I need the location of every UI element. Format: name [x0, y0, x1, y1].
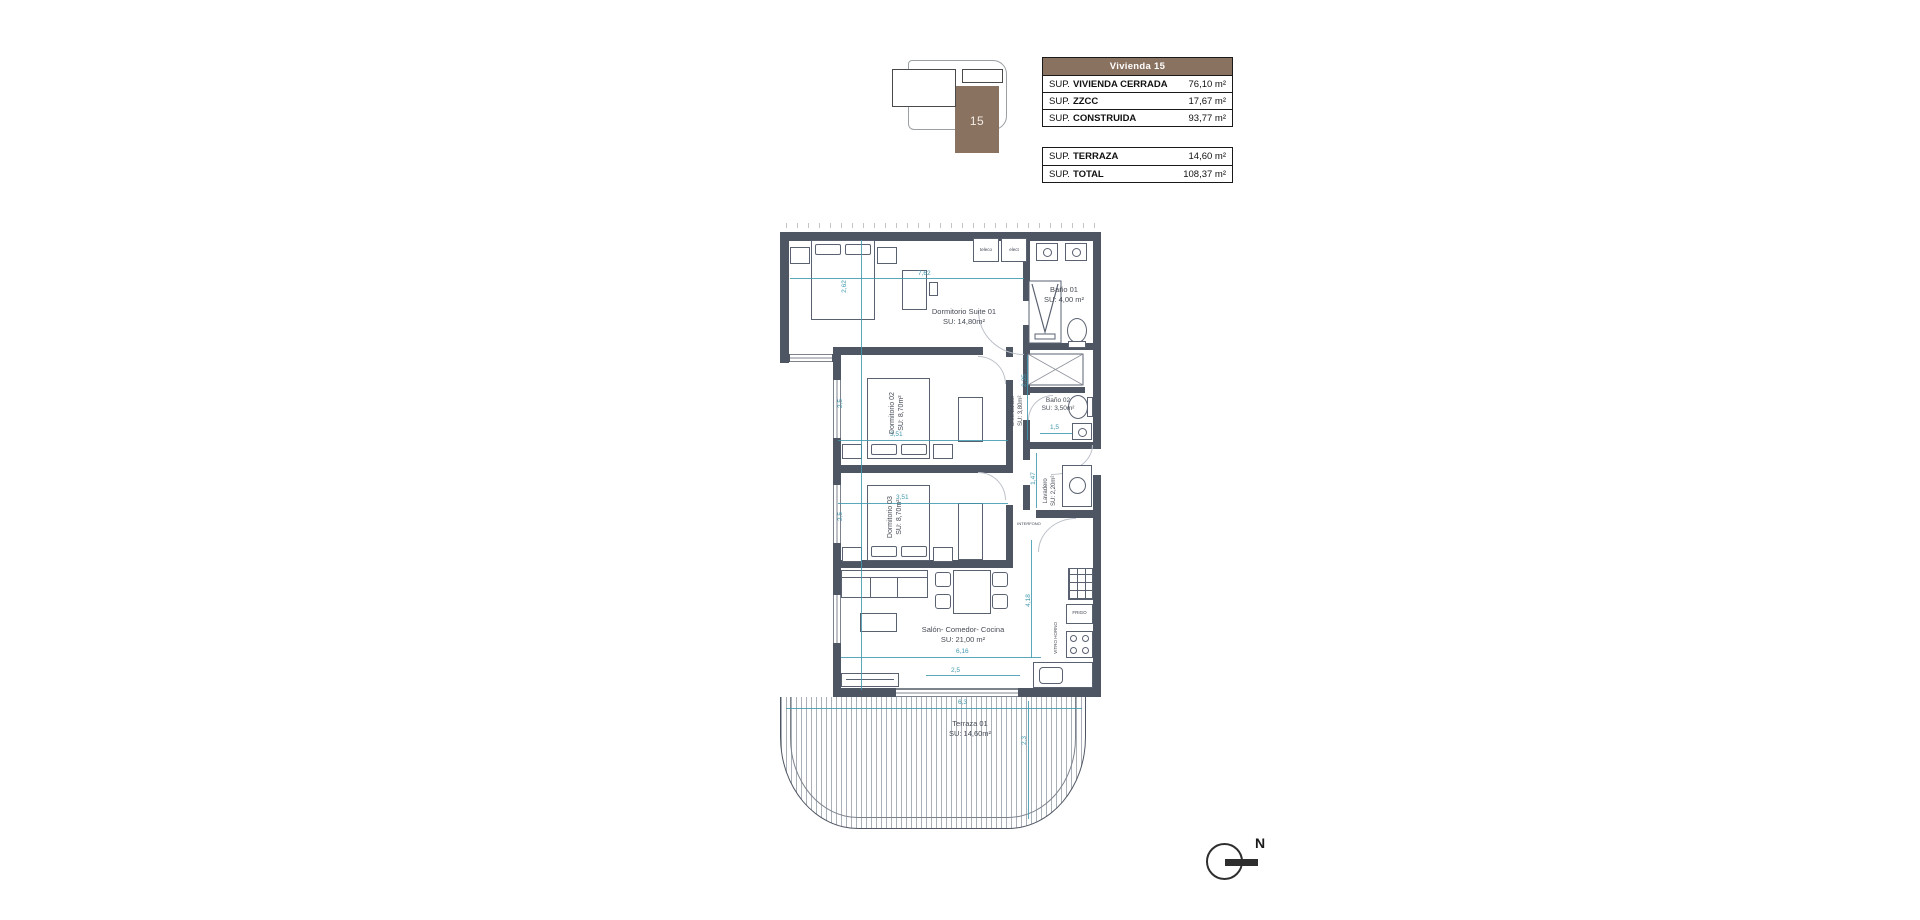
wall-hall-low	[1006, 505, 1013, 568]
room-area: SU: 8,70m²	[897, 378, 906, 448]
row-label: SUP.TOTAL	[1049, 169, 1104, 180]
wall-suite-dorm2	[833, 347, 983, 355]
dim-label: 7,62	[918, 270, 931, 277]
key-location-plan: 15	[890, 50, 1022, 162]
highlighted-unit: 15	[955, 86, 999, 153]
neighbor-unit-b	[962, 69, 1003, 83]
room-label-dorm2: Dormitorio 02 SU: 8,70m²	[888, 378, 906, 448]
window-salon	[833, 595, 841, 643]
row-value: 14,60 m²	[1189, 151, 1227, 162]
kitchen-shelves	[1068, 568, 1093, 600]
dim-line	[841, 657, 1041, 658]
row-prefix: SUP.	[1049, 113, 1070, 124]
room-area: SU: 21,00 m²	[903, 635, 1023, 645]
row-value: 76,10 m²	[1189, 79, 1227, 90]
nightstand	[842, 547, 862, 562]
dining-chair	[935, 594, 951, 609]
sliding-door-terrace	[896, 688, 1018, 697]
washing-machine	[1062, 465, 1092, 507]
room-name: Terraza 01	[910, 719, 1030, 729]
basin-icon	[1043, 248, 1052, 257]
room-name: Lavadero	[1043, 462, 1051, 520]
washer-door-icon	[1069, 477, 1086, 494]
cooktop-label-text: VITRO HORNO	[1053, 618, 1059, 658]
unit-number: 15	[970, 114, 984, 128]
window-dorm2	[833, 380, 841, 438]
sink-bano2	[1072, 423, 1092, 440]
toilet-bano1	[1067, 318, 1087, 343]
table-row: SUP.VIVIENDA CERRADA 76,10 m²	[1043, 75, 1232, 92]
wall-bano1-bottom	[1023, 343, 1101, 350]
room-label-salon: Salón- Comedor- Cocina SU: 21,00 m²	[903, 625, 1023, 645]
dining-chair	[935, 572, 951, 587]
burner-icon	[1070, 647, 1077, 654]
row-label: SUP.ZZCC	[1049, 96, 1098, 107]
wall-lavadero-left-b	[1023, 485, 1030, 510]
table-row: SUP.CONSTRUIDA 93,77 m²	[1043, 109, 1232, 126]
desk-dorm2	[958, 397, 983, 442]
dim-line	[838, 440, 1008, 441]
dim-label: 4,18	[1025, 594, 1032, 607]
row-label: SUP.CONSTRUIDA	[1049, 113, 1136, 124]
closet-teleco-label: teleco	[973, 248, 999, 253]
room-area: SU: 14,60m²	[910, 729, 1030, 739]
door-arc-dorm2	[978, 356, 1006, 384]
wall-dorm2-dorm3	[833, 465, 1013, 473]
row-label: SUP.VIVIENDA CERRADA	[1049, 79, 1168, 90]
wall-lavadero-left-a	[1023, 449, 1030, 460]
room-name: Salón- Comedor- Cocina	[903, 625, 1023, 635]
door-arc-dorm3	[978, 472, 1006, 500]
dim-line	[786, 708, 1082, 709]
room-label-distribuidor: Distribuidor SU: 3,80m²	[1010, 379, 1026, 443]
room-area: SU: 3,50m²	[1026, 405, 1090, 413]
room-label-suite: Dormitorio Suite 01 SU: 14,80m²	[918, 307, 1010, 327]
room-name: Dormitorio 03	[886, 482, 895, 552]
sideboard-line	[846, 679, 894, 680]
dim-label: 2,5	[837, 512, 844, 521]
terrace-inner-edge	[790, 697, 1076, 818]
room-area: SU: 3,80m²	[1018, 379, 1026, 443]
dim-line	[1040, 433, 1072, 434]
pillow	[815, 244, 841, 255]
dining-chair	[992, 594, 1008, 609]
interfono-label: INTERFONO	[1014, 522, 1044, 526]
closet-elect-label: elect	[1001, 248, 1027, 253]
table-header: Vivienda 15	[1043, 58, 1232, 75]
sideboard	[841, 673, 899, 687]
dim-line	[926, 675, 1020, 676]
burner-icon	[1082, 647, 1089, 654]
shower-bano2	[1027, 353, 1084, 386]
row-prefix: SUP.	[1049, 79, 1070, 90]
room-name: Baño 01	[1025, 285, 1103, 295]
surface-table-vivienda: Vivienda 15 SUP.VIVIENDA CERRADA 76,10 m…	[1042, 57, 1233, 127]
nightstand	[877, 247, 897, 264]
toilet-tank	[1068, 341, 1086, 348]
terrace	[780, 697, 1086, 829]
row-name: VIVIENDA CERRADA	[1073, 79, 1168, 90]
row-name: TERRAZA	[1073, 151, 1118, 162]
table-row: SUP.ZZCC 17,67 m²	[1043, 92, 1232, 109]
burner-icon	[1082, 635, 1089, 642]
room-name: Dormitorio 02	[888, 378, 897, 448]
room-label-lavadero: Lavadero SU: 2,20m²	[1043, 462, 1059, 520]
room-label-terraza: Terraza 01 SU: 14,60m²	[910, 719, 1030, 739]
row-prefix: SUP.	[1049, 96, 1070, 107]
desk-dorm3	[958, 503, 983, 560]
sofa	[841, 570, 928, 598]
dim-label: 2,5	[837, 399, 844, 408]
room-name: Distribuidor	[1010, 379, 1018, 443]
surface-table-totals: SUP.TERRAZA 14,60 m² SUP.TOTAL 108,37 m²	[1042, 147, 1233, 183]
dim-label: 6,16	[956, 648, 969, 655]
neighbor-unit-a	[892, 69, 956, 107]
pillow	[901, 546, 927, 557]
dim-label: 2,62	[841, 280, 848, 293]
chair-suite	[929, 282, 938, 296]
cooktop-label: VITRO HORNO	[1053, 618, 1059, 658]
dimension-tick-strip	[786, 223, 1096, 228]
room-area: SU: 14,80m²	[918, 317, 1010, 327]
room-name: Baño 02	[1026, 397, 1090, 405]
wall-right-lower	[1093, 475, 1101, 697]
dining-table	[953, 570, 991, 614]
fridge-label: FRIGO	[1066, 611, 1093, 616]
row-name: CONSTRUIDA	[1073, 113, 1136, 124]
dining-chair	[992, 572, 1008, 587]
pillow	[845, 244, 871, 255]
table-row: SUP.TERRAZA 14,60 m²	[1043, 148, 1232, 165]
nightstand	[842, 444, 862, 459]
dim-label: 1,47	[1030, 472, 1037, 485]
kitchen-sink	[1039, 667, 1063, 684]
row-value: 17,67 m²	[1189, 96, 1227, 107]
dim-line	[861, 240, 862, 690]
nightstand	[933, 547, 953, 562]
room-label-dorm3: Dormitorio 03 SU: 8,70m²	[886, 482, 904, 552]
table-row: SUP.TOTAL 108,37 m²	[1043, 165, 1232, 182]
dim-label: 2,5	[951, 667, 960, 674]
row-name: TOTAL	[1073, 169, 1104, 180]
north-compass: N	[1200, 831, 1274, 897]
dim-line	[790, 278, 1024, 279]
nightstand	[790, 247, 810, 264]
nightstand	[933, 444, 953, 459]
floor-plan: teleco elect FRIGO VITRO HORNO	[778, 185, 1123, 840]
sink-bano1	[1065, 243, 1087, 261]
row-label: SUP.TERRAZA	[1049, 151, 1118, 162]
compass-north-label: N	[1255, 835, 1265, 851]
row-value: 108,37 m²	[1183, 169, 1226, 180]
wall-suite-left	[780, 232, 789, 363]
sink-bano1	[1036, 243, 1058, 261]
dim-label: 1,5	[1050, 424, 1059, 431]
dim-label: 6,3	[958, 699, 967, 706]
room-area: SU: 2,20m²	[1051, 462, 1059, 520]
wall-right-upper	[1093, 232, 1101, 449]
room-label-bano2: Baño 02 SU: 3,50m²	[1026, 397, 1090, 414]
window-suite	[790, 354, 832, 362]
basin-icon	[1072, 248, 1081, 257]
dim-line	[838, 503, 1008, 504]
row-value: 93,77 m²	[1189, 113, 1227, 124]
basin-icon	[1078, 428, 1087, 437]
cooktop	[1066, 631, 1093, 658]
wall-shower2-bottom	[1023, 387, 1085, 393]
coffee-table	[860, 613, 897, 632]
row-name: ZZCC	[1073, 96, 1098, 107]
room-label-bano1: Baño 01 SU: 4,00 m²	[1025, 285, 1103, 305]
room-area: SU: 8,70m²	[895, 482, 904, 552]
compass-needle-icon	[1225, 859, 1258, 866]
room-area: SU: 4,00 m²	[1025, 295, 1103, 305]
burner-icon	[1070, 635, 1077, 642]
row-prefix: SUP.	[1049, 151, 1070, 162]
room-name: Dormitorio Suite 01	[918, 307, 1010, 317]
row-prefix: SUP.	[1049, 169, 1070, 180]
